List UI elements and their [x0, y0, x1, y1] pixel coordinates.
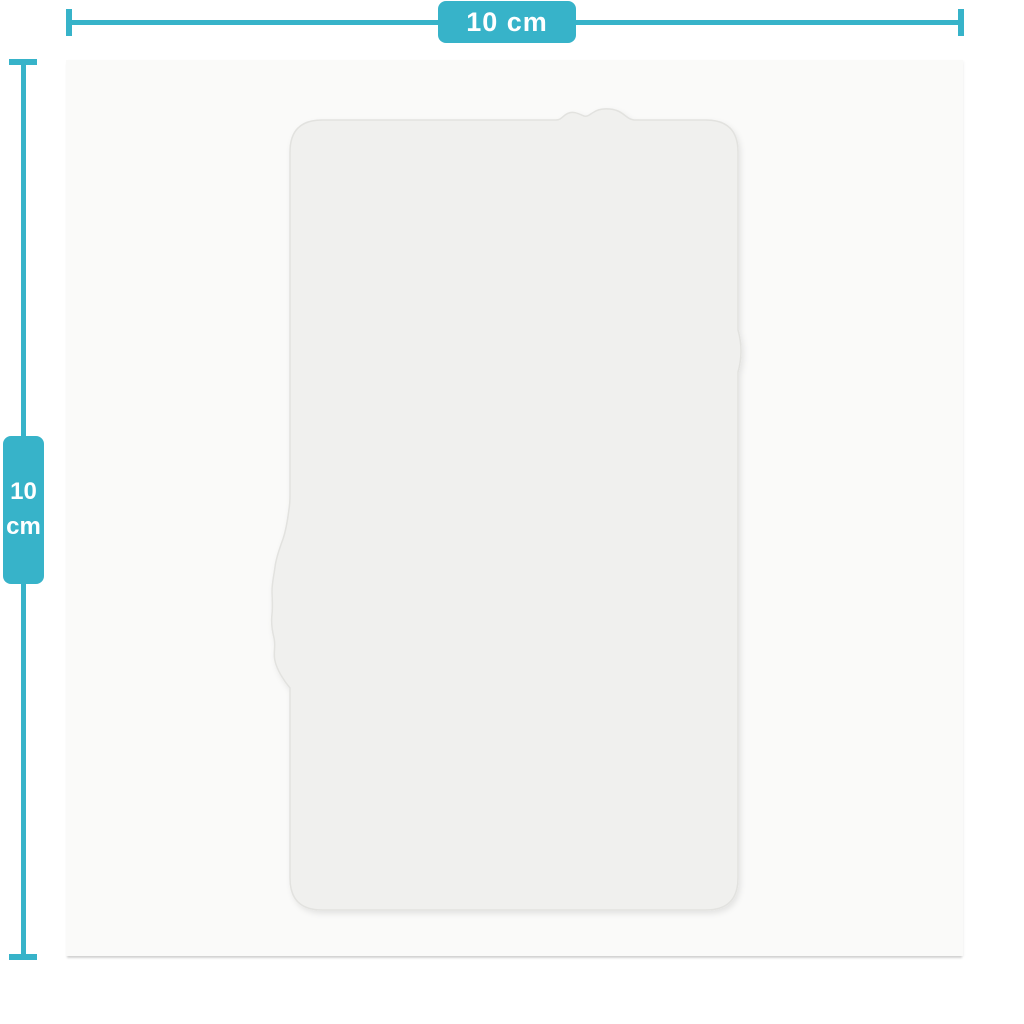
height-dimension-label-unit: cm — [6, 510, 41, 545]
product-backing-card — [66, 60, 963, 956]
width-dimension-label: 10 cm — [438, 1, 576, 43]
height-dimension-endcap-bottom — [9, 954, 37, 960]
width-dimension-label-text: 10 cm — [466, 7, 548, 38]
height-dimension-endcap-top — [9, 59, 37, 65]
width-dimension-endcap-right — [958, 9, 964, 36]
height-dimension-label: 10 cm — [3, 436, 44, 584]
width-dimension-endcap-left — [66, 9, 72, 36]
height-dimension-label-value: 10 — [10, 475, 37, 510]
product-dimension-image: 10 cm 10 cm — [0, 0, 1024, 1024]
